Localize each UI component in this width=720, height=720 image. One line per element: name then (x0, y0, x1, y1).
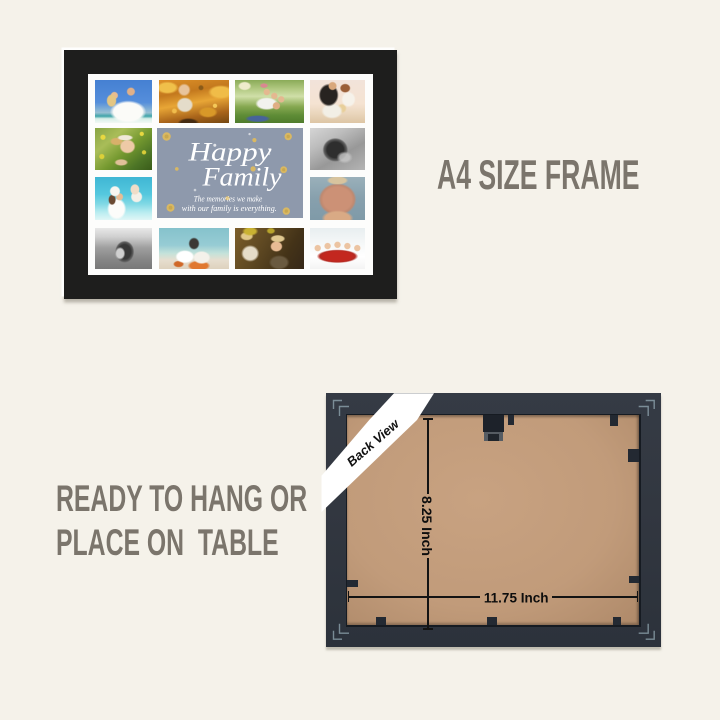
svg-text:with our family is everything.: with our family is everything. (182, 203, 277, 213)
svg-text:Family: Family (202, 162, 283, 191)
svg-text:The memories we make: The memories we make (194, 193, 263, 203)
